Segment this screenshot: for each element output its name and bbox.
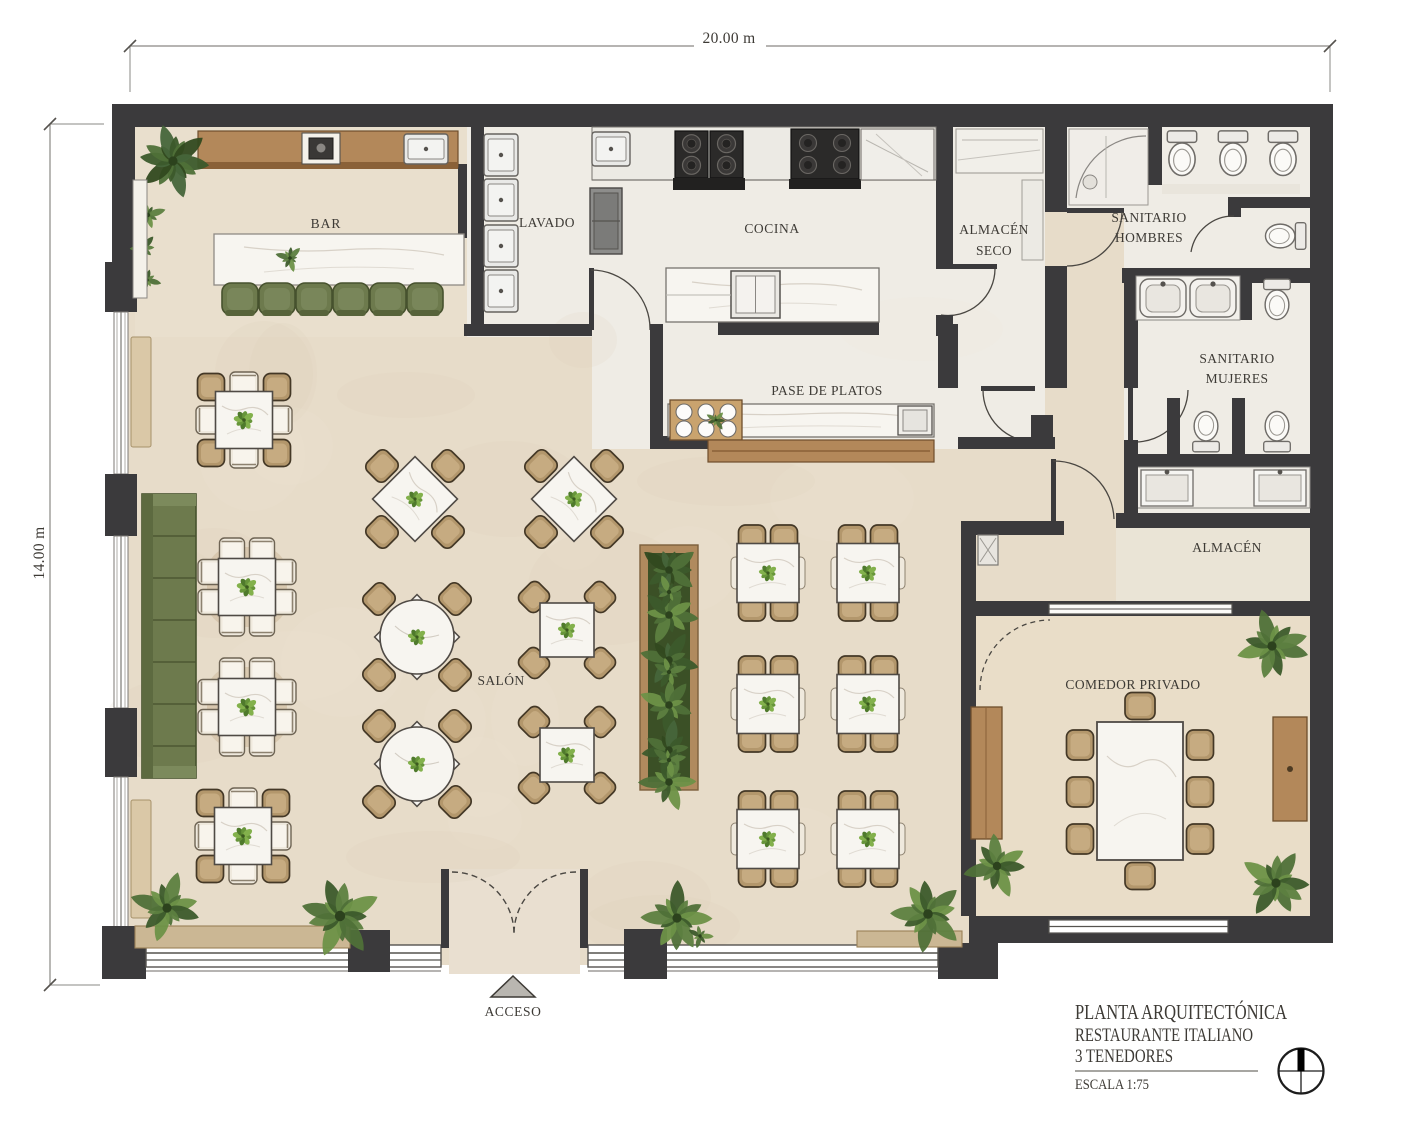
svg-text:MUJERES: MUJERES [1206, 371, 1269, 386]
svg-text:14.00 m: 14.00 m [31, 527, 48, 580]
svg-text:COMEDOR PRIVADO: COMEDOR PRIVADO [1065, 677, 1200, 692]
svg-text:SALÓN: SALÓN [477, 673, 524, 688]
svg-text:ACCESO: ACCESO [485, 1004, 542, 1019]
svg-text:LAVADO: LAVADO [519, 215, 575, 230]
svg-text:SANITARIO: SANITARIO [1111, 210, 1186, 225]
svg-text:RESTAURANTE ITALIANO: RESTAURANTE ITALIANO [1075, 1025, 1253, 1046]
svg-text:BAR: BAR [311, 216, 342, 231]
svg-text:ALMACÉN: ALMACÉN [1192, 540, 1262, 555]
svg-text:20.00 m: 20.00 m [703, 30, 756, 47]
svg-text:HOMBRES: HOMBRES [1115, 230, 1183, 245]
svg-text:3 TENEDORES: 3 TENEDORES [1075, 1046, 1173, 1067]
svg-text:PASE DE PLATOS: PASE DE PLATOS [771, 383, 882, 398]
svg-text:ESCALA 1:75: ESCALA 1:75 [1075, 1077, 1149, 1093]
svg-text:SANITARIO: SANITARIO [1199, 351, 1274, 366]
svg-text:ALMACÉN: ALMACÉN [959, 222, 1029, 237]
svg-text:SECO: SECO [976, 243, 1012, 258]
svg-text:PLANTA ARQUITECTÓNICA: PLANTA ARQUITECTÓNICA [1075, 1000, 1288, 1024]
svg-text:COCINA: COCINA [744, 221, 799, 236]
